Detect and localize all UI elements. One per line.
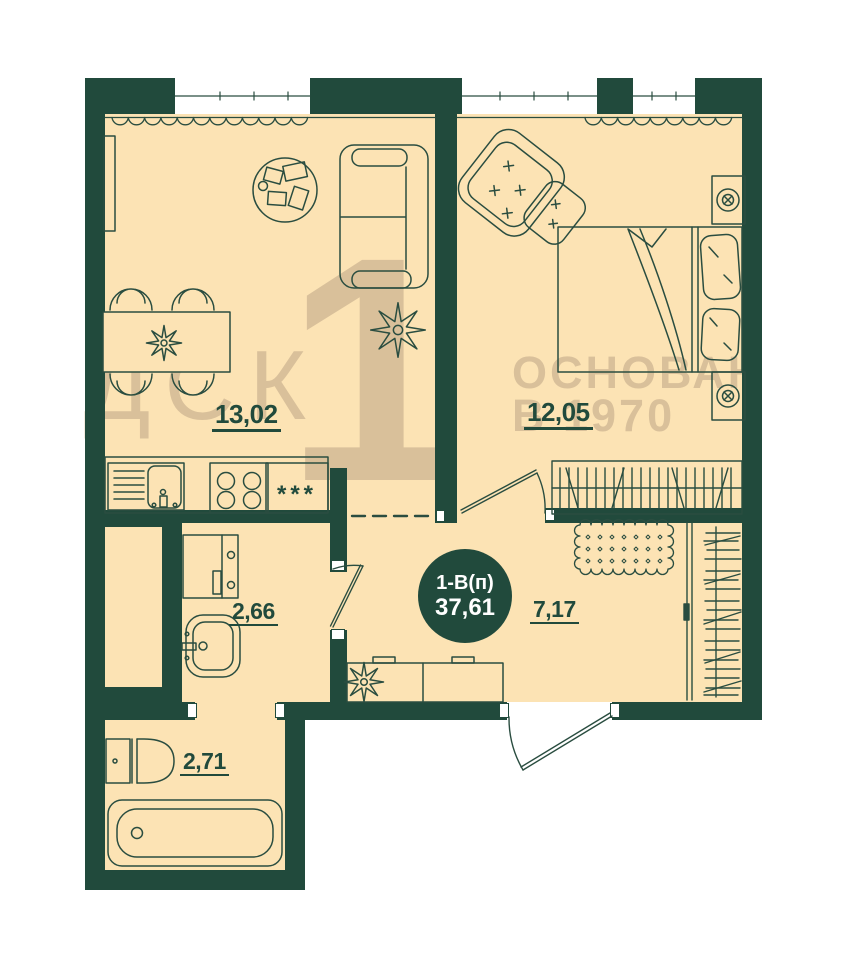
toilet	[106, 739, 174, 783]
rug	[575, 520, 674, 575]
pillows	[700, 234, 741, 361]
bathtub	[108, 800, 282, 866]
linework-layer	[0, 0, 844, 960]
sofa	[340, 145, 428, 288]
nightstand-lamp-top	[712, 176, 745, 224]
washing-machine	[183, 535, 238, 598]
room-label-bathroom: 2,71	[180, 749, 229, 776]
curtain-living	[112, 118, 308, 125]
room-label-bedroom: 12,05	[524, 399, 593, 430]
room-label-kitchen-living: 13,02	[212, 401, 281, 432]
curtain-bedroom	[585, 118, 732, 125]
bedroom-door	[461, 470, 545, 513]
room-label-laundry: 2,66	[229, 599, 278, 626]
window-glazing-lines	[175, 92, 695, 100]
badge-total-area: 37,61	[418, 595, 512, 621]
kitchen-cabinet-marker: ***	[266, 472, 328, 510]
laundry-door	[331, 565, 364, 627]
plant-living	[371, 303, 426, 358]
entrance-door	[509, 713, 612, 770]
stove	[210, 463, 268, 513]
bedroom-wardrobe	[552, 461, 742, 514]
radiator	[104, 136, 115, 231]
room-label-hallway: 7,17	[530, 597, 579, 624]
plant-hall	[345, 663, 384, 702]
area-badge: 1-В(п) 37,61	[418, 549, 512, 643]
coffee-table	[253, 158, 317, 222]
hall-wardrobe	[684, 523, 741, 700]
nightstand-lamp-bottom	[712, 372, 745, 420]
badge-layout-code: 1-В(п)	[418, 572, 512, 594]
ottoman	[519, 177, 590, 249]
floor-plan: ДСК 1 ОСНОВАН В 1970	[0, 0, 844, 960]
